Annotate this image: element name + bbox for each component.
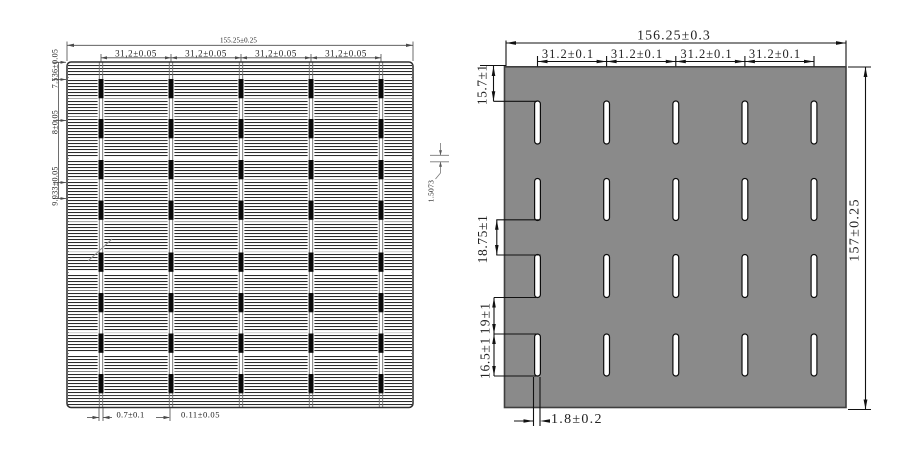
svg-text:15.7±1: 15.7±1 <box>475 64 490 105</box>
svg-text:9.933±0.05: 9.933±0.05 <box>51 166 60 205</box>
svg-text:31,2±0.05: 31,2±0.05 <box>115 48 157 58</box>
svg-text:155.25±0.25: 155.25±0.25 <box>220 37 257 45</box>
svg-text:18.75±1: 18.75±1 <box>475 215 490 264</box>
svg-text:0.11±0.05: 0.11±0.05 <box>181 410 220 420</box>
svg-text:156.25±0.3: 156.25±0.3 <box>637 28 711 43</box>
svg-text:0.7±0.1: 0.7±0.1 <box>116 410 144 420</box>
svg-text:31.2±0.1: 31.2±0.1 <box>611 47 663 61</box>
svg-text:31,2±0.05: 31,2±0.05 <box>255 48 297 58</box>
svg-text:31,2±0.05: 31,2±0.05 <box>325 48 367 58</box>
svg-text:1.8±0.2: 1.8±0.2 <box>551 412 603 427</box>
svg-text:31.2±0.1: 31.2±0.1 <box>749 47 801 61</box>
svg-text:1.5073: 1.5073 <box>427 180 436 202</box>
svg-text:31.2±0.1: 31.2±0.1 <box>680 47 732 61</box>
svg-text:31,2±0.05: 31,2±0.05 <box>185 48 227 58</box>
svg-text:19±1: 19±1 <box>478 302 493 334</box>
svg-text:8±0.05: 8±0.05 <box>51 110 60 134</box>
svg-text:7.536±0.05: 7.536±0.05 <box>51 49 60 88</box>
svg-text:31.2±0.1: 31.2±0.1 <box>542 47 594 61</box>
svg-text:16.5±1: 16.5±1 <box>478 337 493 379</box>
svg-text:157±0.25: 157±0.25 <box>848 198 863 262</box>
